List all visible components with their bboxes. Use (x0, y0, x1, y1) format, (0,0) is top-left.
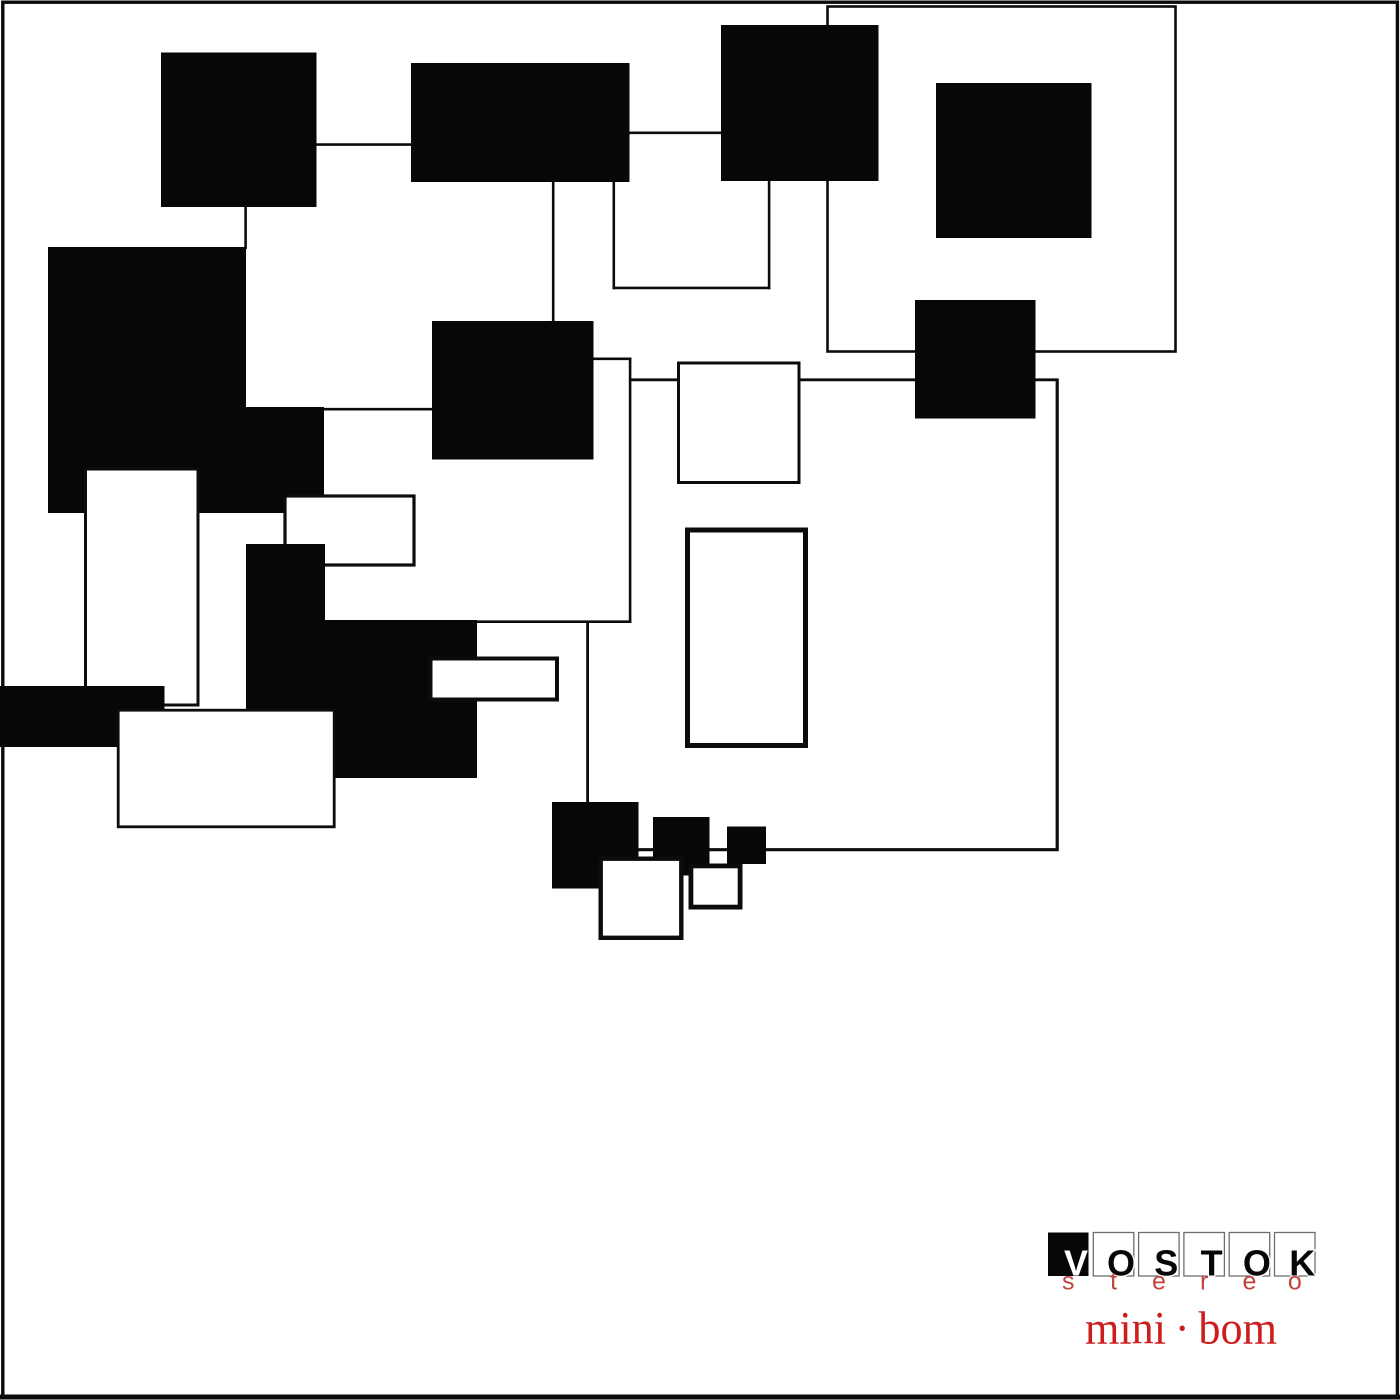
svg-text:e: e (1243, 1268, 1257, 1296)
svg-text:o: o (1288, 1268, 1302, 1296)
svg-text:s: s (1062, 1268, 1075, 1296)
svg-text:t: t (1110, 1268, 1117, 1296)
svg-text:r: r (1200, 1268, 1208, 1296)
svg-text:e: e (1152, 1268, 1166, 1296)
svg-text:mini · bom: mini · bom (1085, 1304, 1277, 1355)
